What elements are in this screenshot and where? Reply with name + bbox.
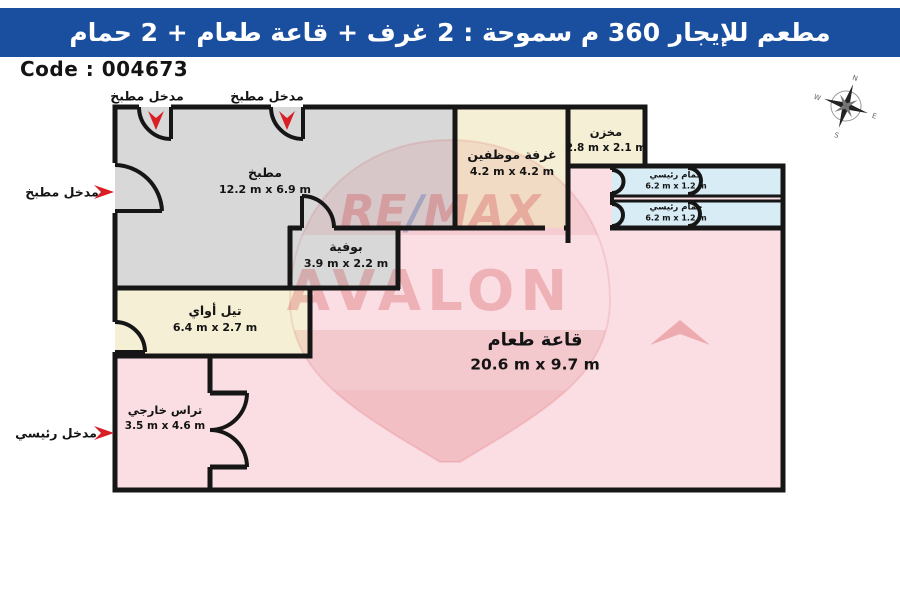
room-name: مطبخ [219, 164, 311, 182]
room-name: تيل أواي [173, 302, 257, 320]
kitchen-entrance-label-1: مدخل مطبخ [110, 89, 184, 104]
room-dims: 6.4 m x 2.7 m [173, 320, 257, 336]
room-label-kitchen: مطبخ 12.2 m x 6.9 m [219, 164, 311, 198]
room-dims: 3.9 m x 2.2 m [304, 256, 388, 272]
room-name: قاعة طعام [470, 328, 600, 354]
compass-icon: N E S W [803, 64, 886, 149]
room-name: غرفة موظفين [467, 146, 556, 164]
room-dims: 12.2 m x 6.9 m [219, 182, 311, 198]
room-name: تراس خارجي [125, 402, 205, 419]
room-label-takeaway: تيل أواي 6.4 m x 2.7 m [173, 302, 257, 336]
room-label-storage: مخزن 2.8 m x 2.1 m [566, 124, 646, 156]
room-label-staff-room: غرفة موظفين 4.2 m x 4.2 m [467, 146, 556, 180]
arrow-right-icon [94, 426, 114, 440]
room-dims: 6.2 m x 1.2 m [645, 213, 706, 223]
room-name: بوفية [304, 238, 388, 256]
kitchen-entrance-label-side: مدخل مطبخ [25, 185, 99, 200]
room-name: حمام رئيسي [645, 171, 706, 182]
room-dims: 2.8 m x 2.1 m [566, 141, 646, 156]
floor-plan-page: مطعم للإيجار 360 م سموحة : 2 غرف + قاعة … [0, 0, 900, 600]
compass-west-label: W [813, 93, 822, 103]
room-dims: 6.2 m x 1.2 m [645, 181, 706, 191]
room-label-bathroom-2: حمام رئيسي 6.2 m x 1.2 m [645, 203, 706, 224]
room-label-buffet: بوفية 3.9 m x 2.2 m [304, 238, 388, 272]
room-dims: 3.5 m x 4.6 m [125, 419, 205, 434]
room-label-dining-hall: قاعة طعام 20.6 m x 9.7 m [470, 328, 600, 377]
main-entrance-label: مدخل رئيسي [15, 426, 97, 441]
compass-east-label: E [871, 112, 878, 121]
kitchen-entrance-label-2: مدخل مطبخ [230, 89, 304, 104]
room-label-terrace: تراس خارجي 3.5 m x 4.6 m [125, 402, 205, 434]
room-name: مخزن [566, 124, 646, 141]
room-label-bathroom-1: حمام رئيسي 6.2 m x 1.2 m [645, 171, 706, 192]
compass-north-label: N [851, 74, 858, 83]
watermark-brand: RE/MAX [340, 185, 543, 239]
compass-south-label: S [833, 131, 840, 140]
room-name: حمام رئيسي [645, 203, 706, 214]
room-dims: 20.6 m x 9.7 m [470, 354, 600, 376]
room-dims: 4.2 m x 4.2 m [467, 164, 556, 180]
